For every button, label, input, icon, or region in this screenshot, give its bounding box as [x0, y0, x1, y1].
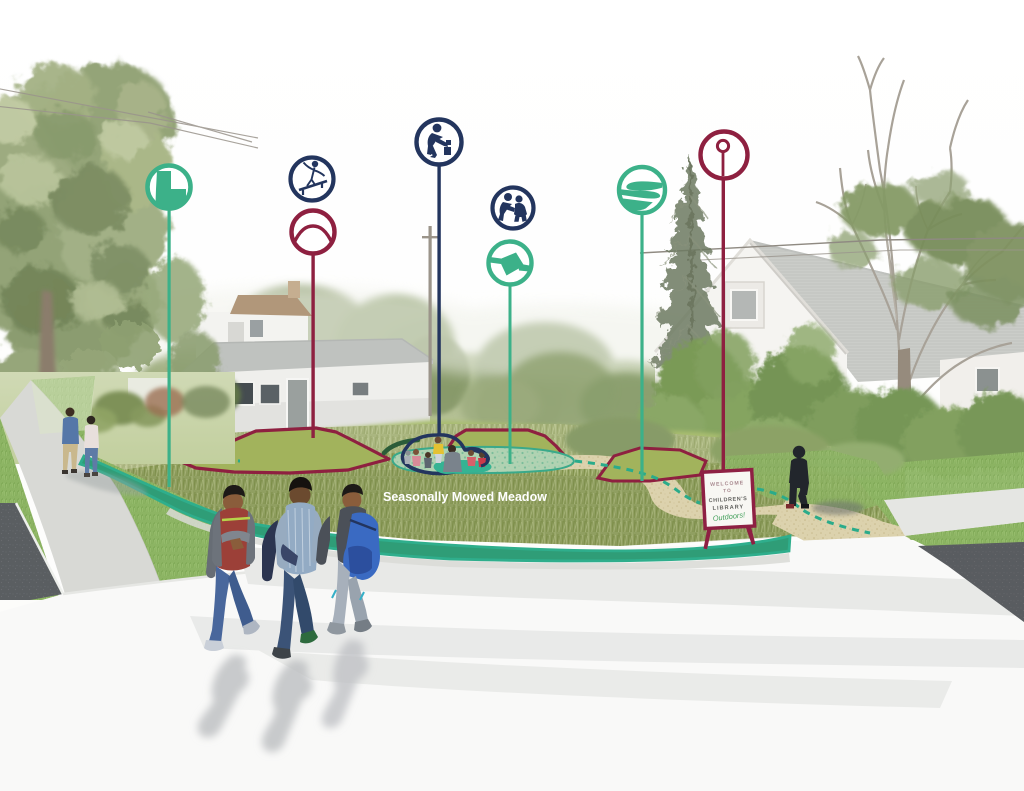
- svg-text:Seasonally Mowed Meadow: Seasonally Mowed Meadow: [383, 490, 547, 504]
- svg-text:TO: TO: [723, 488, 732, 494]
